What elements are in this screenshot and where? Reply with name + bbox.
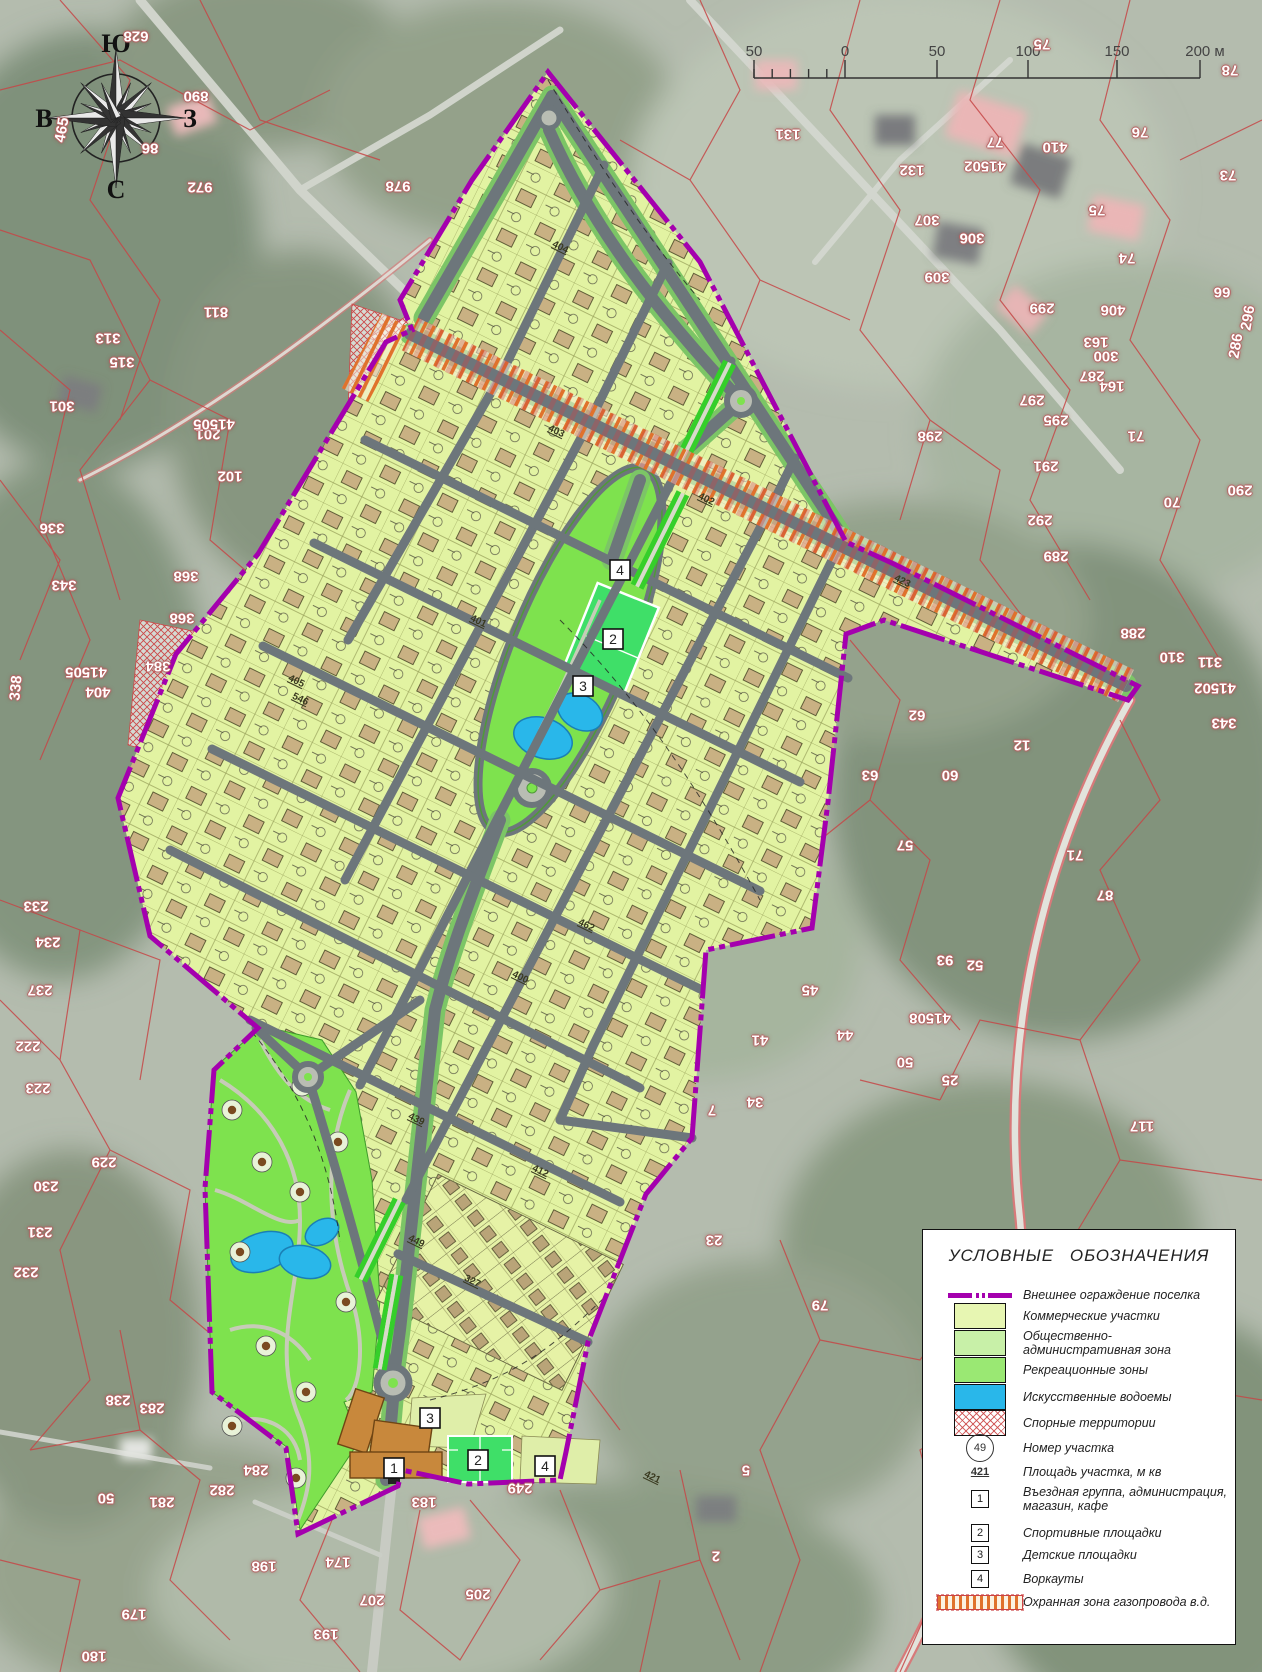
- cadastral-label: 223: [25, 1081, 50, 1096]
- legend-item-playgrounds: 3 Детские площадки: [937, 1543, 1227, 1567]
- cadastral-label: 45: [802, 983, 819, 998]
- cadastral-label: 73: [1220, 168, 1237, 183]
- cadastral-label: 368: [169, 611, 194, 626]
- cadastral-label: 237: [27, 983, 52, 998]
- svg-text:2: 2: [474, 1452, 482, 1468]
- cadastral-label: 79: [812, 1298, 829, 1313]
- cadastral-label: 282: [209, 1483, 234, 1498]
- cadastral-label: 301: [49, 399, 74, 414]
- cadastral-label: 238: [105, 1393, 130, 1408]
- cadastral-label: 232: [13, 1265, 38, 1280]
- legend-item-lot-area: 421 Площадь участка, м кв: [937, 1460, 1227, 1484]
- scale-label: 150: [1104, 43, 1129, 60]
- cadastral-label: 75: [1034, 37, 1051, 52]
- legend-item-admin-zone: Общественно-административная зона: [937, 1331, 1227, 1355]
- legend-item-disputed: Спорные территории: [937, 1411, 1227, 1435]
- cadastral-label: 41502: [964, 159, 1006, 174]
- legend-title: УСЛОВНЫЕ ОБОЗНАЧЕНИЯ: [923, 1246, 1235, 1266]
- cadastral-label: 222: [15, 1039, 40, 1054]
- cadastral-label: 76: [1132, 125, 1149, 140]
- cadastral-label: 77: [987, 135, 1004, 150]
- cadastral-label: 289: [1043, 549, 1068, 564]
- tree-icon: [258, 1158, 266, 1166]
- map-marker-4: 4: [610, 560, 630, 580]
- cadastral-label: 62: [909, 708, 926, 723]
- cadastral-label: 25: [942, 1073, 959, 1088]
- cadastral-label: 174: [325, 1555, 350, 1570]
- cadastral-label: 300: [1093, 349, 1118, 364]
- cadastral-label: 52: [967, 958, 984, 973]
- cadastral-label: 307: [914, 213, 939, 228]
- cadastral-label: 117: [1130, 1119, 1154, 1134]
- cadastral-label: 315: [109, 355, 134, 370]
- cadastral-label: 295: [1043, 413, 1068, 428]
- cadastral-label: 406: [1100, 303, 1125, 318]
- cadastral-label: 234: [35, 935, 60, 950]
- recreation-swatch: [954, 1357, 1006, 1383]
- svg-text:2: 2: [609, 631, 617, 647]
- tree-icon: [262, 1342, 270, 1350]
- cadastral-label: 298: [917, 429, 942, 444]
- cadastral-label: 465: [52, 116, 71, 143]
- scale-label: 0: [841, 43, 849, 60]
- cadastral-label: 404: [85, 685, 110, 700]
- cadastral-label: 306: [959, 231, 984, 246]
- svg-text:3: 3: [579, 678, 587, 694]
- map-marker-2: 2: [603, 629, 623, 649]
- cadastral-label: 71: [1128, 429, 1145, 444]
- cadastral-label: 291: [1033, 459, 1058, 474]
- admin-zone-swatch: [954, 1330, 1006, 1356]
- cadastral-label: 57: [897, 838, 914, 853]
- compass-label-left: В: [35, 104, 52, 133]
- cadastral-label: 368: [173, 569, 198, 584]
- cadastral-label: 131: [775, 127, 800, 142]
- cadastral-label: 179: [121, 1607, 146, 1622]
- legend-item-gas-zone: Охранная зона газопровода в.д.: [937, 1590, 1227, 1614]
- cadastral-label: 410: [1042, 140, 1067, 155]
- cadastral-label: 87: [1097, 888, 1114, 903]
- svg-text:1: 1: [390, 1460, 398, 1476]
- cadastral-label: 890: [183, 89, 208, 104]
- cadastral-label: 336: [39, 521, 64, 536]
- cadastral-label: 2: [712, 1549, 720, 1564]
- cadastral-label: 233: [23, 899, 48, 914]
- legend-item-water: Искусственные водоемы: [937, 1385, 1227, 1409]
- cadastral-label: 41505: [65, 665, 107, 680]
- map-marker-2: 2: [468, 1450, 488, 1470]
- tree-icon: [302, 1388, 310, 1396]
- legend-item-lot-number: 49 Номер участка: [937, 1436, 1227, 1460]
- cadastral-label: 297: [1019, 393, 1044, 408]
- scale-label: 50: [929, 43, 946, 60]
- cadastral-label: 311: [1198, 655, 1222, 670]
- cadastral-label: 86: [142, 141, 159, 156]
- cadastral-label: 183: [411, 1495, 436, 1510]
- cadastral-label: 229: [91, 1155, 116, 1170]
- cadastral-label: 628: [123, 29, 148, 44]
- svg-text:4: 4: [616, 562, 624, 578]
- cadastral-label: 284: [243, 1463, 268, 1478]
- cadastral-label: 207: [359, 1593, 384, 1608]
- cadastral-label: 66: [1214, 285, 1231, 300]
- sports-symbol: 2: [971, 1524, 989, 1542]
- gas-zone-swatch: [937, 1595, 1023, 1610]
- cadastral-label: 281: [149, 1495, 174, 1510]
- master-plan-map: 4233124 Ю В З С 50 0 50 100 150 200 м 62…: [0, 0, 1262, 1672]
- cadastral-label: 296: [1238, 304, 1257, 331]
- cadastral-label: 75: [1089, 203, 1106, 218]
- cadastral-label: 7: [708, 1103, 716, 1118]
- legend: УСЛОВНЫЕ ОБОЗНАЧЕНИЯ Внешнее ограждение …: [922, 1229, 1236, 1645]
- tree-icon: [236, 1248, 244, 1256]
- cadastral-label: 71: [1067, 848, 1084, 863]
- cadastral-label: 343: [1211, 716, 1236, 731]
- legend-item-recreation: Рекреационные зоны: [937, 1358, 1227, 1382]
- cadastral-label: 287: [1079, 369, 1104, 384]
- cadastral-label: 309: [924, 270, 949, 285]
- cadastral-label: 231: [27, 1225, 52, 1240]
- lot-number-symbol: 49: [966, 1434, 994, 1462]
- compass-label-right: З: [183, 104, 197, 133]
- cadastral-label: 972: [187, 180, 212, 195]
- cadastral-label: 288: [1120, 626, 1145, 641]
- cadastral-label: 338: [7, 675, 24, 701]
- cadastral-label: 292: [1027, 513, 1052, 528]
- disputed-swatch: [954, 1410, 1006, 1436]
- cadastral-label: 74: [1119, 251, 1136, 266]
- cadastral-label: 205: [465, 1587, 490, 1602]
- svg-text:4: 4: [541, 1458, 549, 1474]
- boundary-line-swatch: [948, 1293, 1012, 1298]
- lot-area-symbol: 421: [971, 1466, 989, 1478]
- cadastral-label: 44: [837, 1028, 854, 1043]
- cadastral-label: 132: [899, 163, 924, 178]
- cadastral-label: 23: [706, 1233, 723, 1248]
- cadastral-label: 978: [385, 179, 410, 194]
- cadastral-label: 180: [81, 1649, 106, 1664]
- tree-icon: [342, 1298, 350, 1306]
- legend-item-commercial: Коммерческие участки: [937, 1304, 1227, 1328]
- cadastral-label: 310: [1159, 650, 1184, 665]
- commercial-swatch: [954, 1303, 1006, 1329]
- legend-item-sports: 2 Спортивные площадки: [937, 1521, 1227, 1545]
- map-marker-1: 1: [384, 1458, 404, 1478]
- cadastral-label: 41502: [1194, 681, 1236, 696]
- map-marker-4: 4: [535, 1456, 555, 1476]
- legend-item-workout: 4 Воркауты: [937, 1567, 1227, 1591]
- cadastral-label: 34: [747, 1095, 764, 1110]
- tree-icon: [334, 1138, 342, 1146]
- cadastral-label: 50: [98, 1491, 115, 1506]
- cadastral-label: 230: [33, 1179, 58, 1194]
- cadastral-label: 41508: [909, 1011, 951, 1026]
- cadastral-label: 63: [862, 768, 879, 783]
- workout-symbol: 4: [971, 1570, 989, 1588]
- map-marker-3: 3: [420, 1408, 440, 1428]
- legend-item-entrance-group: 1 Въездная группа, администрация, магази…: [937, 1482, 1227, 1516]
- cadastral-label: 60: [942, 768, 959, 783]
- cadastral-label: 193: [313, 1627, 338, 1642]
- cadastral-label: 283: [139, 1401, 164, 1416]
- cadastral-label: 299: [1029, 301, 1054, 316]
- cadastral-label: 198: [251, 1559, 276, 1574]
- cadastral-label: 286: [1226, 332, 1245, 359]
- cadastral-label: 290: [1227, 483, 1252, 498]
- svg-text:3: 3: [426, 1410, 434, 1426]
- cadastral-label: 102: [217, 469, 242, 484]
- tree-icon: [228, 1106, 236, 1114]
- cadastral-label: 12: [1014, 738, 1031, 753]
- compass-label-bottom: С: [107, 175, 126, 204]
- map-marker-3: 3: [573, 676, 593, 696]
- entrance-group-symbol: 1: [971, 1490, 989, 1508]
- cadastral-label: 50: [897, 1055, 914, 1070]
- cadastral-label: 249: [507, 1481, 532, 1496]
- cadastral-label: 78: [1222, 63, 1239, 78]
- cadastral-label: 93: [937, 953, 954, 968]
- cadastral-label: 41505: [193, 417, 235, 432]
- tree-icon: [228, 1422, 236, 1430]
- playground-symbol: 3: [971, 1546, 989, 1564]
- cadastral-label: 5: [742, 1463, 750, 1478]
- scale-label: 200 м: [1185, 43, 1225, 60]
- cadastral-label: 384: [145, 659, 170, 674]
- scale-label: 50: [746, 43, 763, 60]
- cadastral-label: 313: [95, 331, 120, 346]
- tree-icon: [296, 1188, 304, 1196]
- cadastral-label: 70: [1164, 495, 1181, 510]
- cadastral-label: 41: [752, 1033, 769, 1048]
- cadastral-label: 343: [51, 578, 76, 593]
- water-swatch: [954, 1384, 1006, 1410]
- cadastral-label: 811: [204, 305, 228, 320]
